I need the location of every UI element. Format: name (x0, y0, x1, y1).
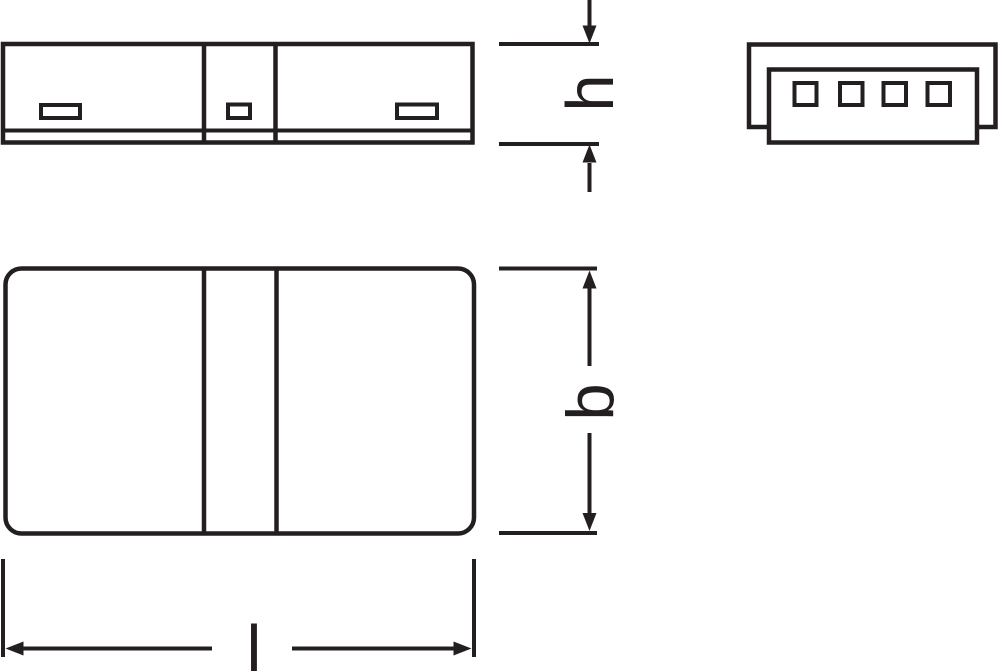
svg-text:b: b (554, 383, 629, 420)
svg-text:h: h (553, 74, 628, 111)
svg-text:l: l (247, 612, 262, 671)
